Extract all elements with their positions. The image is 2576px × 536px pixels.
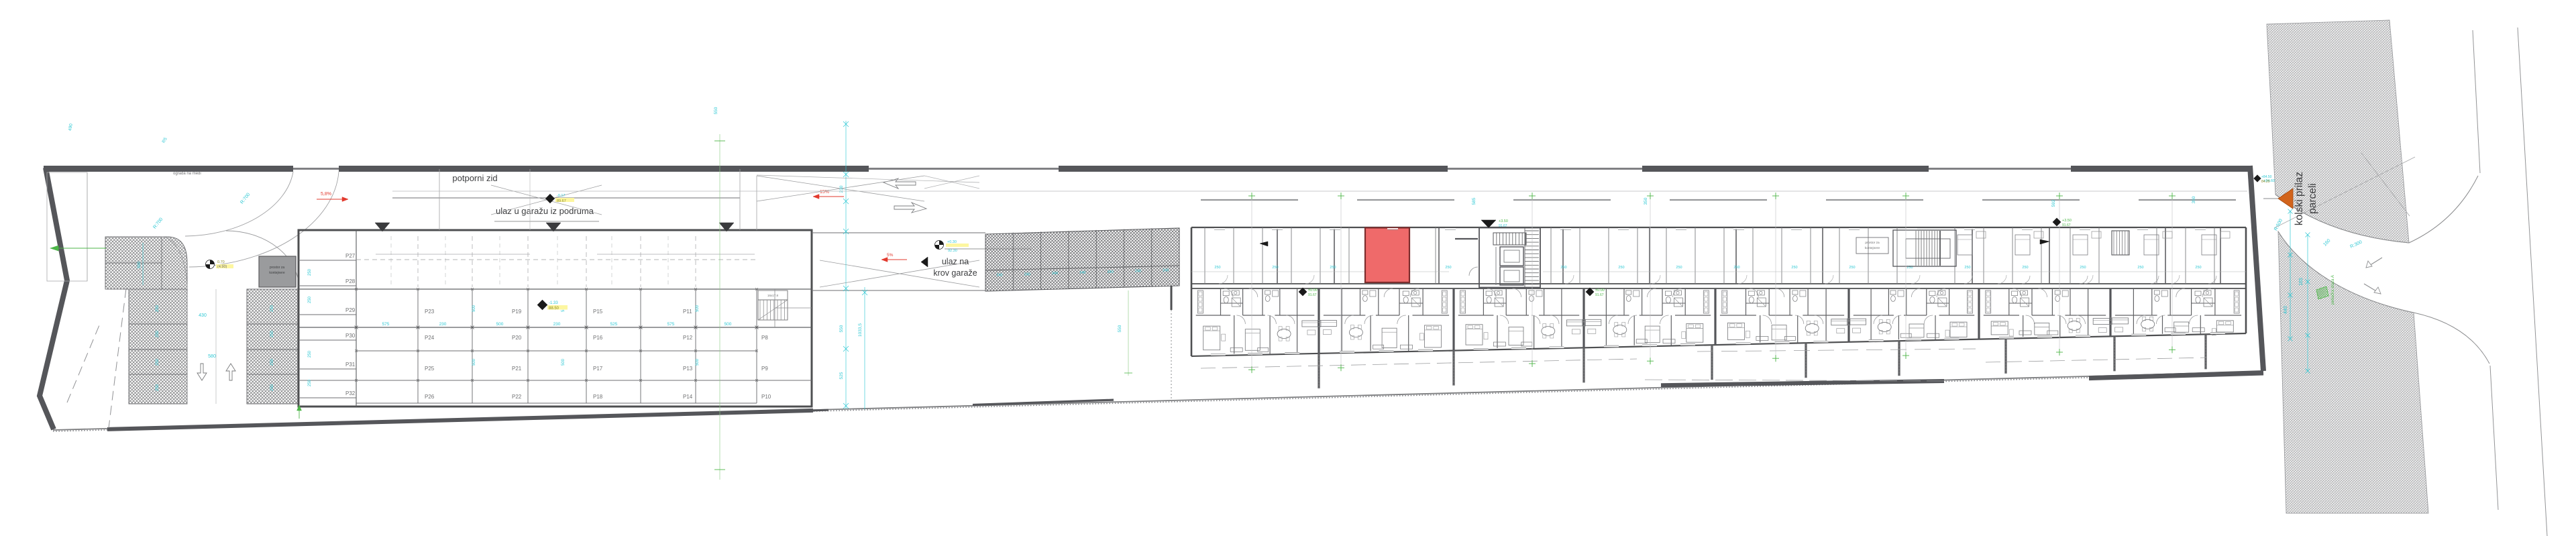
svg-text:P22: P22 [512,394,522,400]
svg-text:250: 250 [1618,266,1624,270]
svg-text:P29: P29 [345,307,356,313]
svg-text:+3.50: +3.50 [1499,219,1508,223]
svg-text:250: 250 [156,384,160,391]
svg-text:440: 440 [2284,306,2288,314]
svg-text:P31: P31 [345,362,356,368]
svg-text:P27: P27 [345,253,356,259]
svg-text:250: 250 [308,350,312,358]
svg-text:5,8%: 5,8% [321,192,331,197]
svg-text:500: 500 [724,322,732,327]
svg-text:250: 250 [1964,266,1970,270]
svg-text:potporni zid: potporni zid [452,173,497,183]
svg-text:P11: P11 [683,309,692,315]
svg-text:P19: P19 [512,309,522,315]
svg-text:500: 500 [472,358,476,366]
svg-text:1033,5: 1033,5 [858,323,863,337]
svg-text:550: 550 [138,261,142,268]
svg-text:89.67: 89.67 [557,199,566,203]
svg-text:430: 430 [199,313,207,318]
svg-text:P24: P24 [425,335,435,341]
svg-text:ulaz na: ulaz na [942,257,969,266]
svg-text:P21: P21 [512,366,522,372]
svg-text:250: 250 [270,384,274,391]
svg-text:+84.50: +84.50 [2261,175,2272,179]
svg-text:250: 250 [1560,266,1566,270]
svg-text:500: 500 [696,305,700,312]
svg-text:240: 240 [1052,272,1058,276]
svg-text:P25: P25 [425,366,435,372]
svg-text:575: 575 [667,322,675,327]
svg-text:P12: P12 [683,335,693,341]
svg-text:+3.50: +3.50 [2062,219,2072,223]
svg-text:250: 250 [308,268,312,276]
svg-text:0.70: 0.70 [217,260,225,264]
svg-text:P10: P10 [761,394,771,400]
svg-text:92.30: 92.30 [948,249,957,253]
svg-text:P9: P9 [761,366,768,372]
svg-text:(4.90): (4.90) [217,265,227,269]
svg-text:P26: P26 [425,394,435,400]
svg-text:±0.00: ±0.00 [1308,288,1318,292]
svg-text:P30: P30 [345,333,356,339]
svg-text:240: 240 [1135,270,1141,274]
svg-text:500: 500 [472,305,476,312]
svg-text:592: 592 [2051,199,2056,207]
svg-text:ulaz u garažu iz podruma: ulaz u garažu iz podruma [496,206,594,216]
svg-text:500: 500 [696,358,700,366]
svg-text:91.67: 91.67 [1595,293,1604,297]
svg-text:P16: P16 [593,335,603,341]
svg-text:350: 350 [1644,197,1648,205]
svg-text:240: 240 [1079,271,1085,275]
svg-text:91.67: 91.67 [2062,223,2071,227]
svg-text:550: 550 [714,107,718,114]
svg-text:250: 250 [156,330,160,337]
svg-text:240: 240 [1024,272,1030,276]
svg-text:250: 250 [2022,266,2028,270]
svg-text:parceli: parceli [2307,183,2318,214]
svg-text:±0.00: ±0.00 [1595,288,1605,292]
svg-text:250: 250 [1676,266,1682,270]
svg-text:230: 230 [439,322,447,327]
svg-text:91.67: 91.67 [1499,224,1507,228]
svg-text:P28: P28 [345,278,356,284]
svg-text:230: 230 [839,185,844,193]
svg-text:P32: P32 [345,390,356,396]
svg-text:525: 525 [610,322,618,327]
svg-text:250: 250 [1445,266,1451,270]
svg-text:-1.33: -1.33 [549,301,558,305]
svg-text:250: 250 [2080,266,2086,270]
svg-text:P23: P23 [425,309,435,315]
svg-text:250: 250 [2195,266,2201,270]
svg-text:165: 165 [2299,278,2304,286]
svg-text:230: 230 [553,322,561,327]
svg-text:84.20: 84.20 [2261,180,2270,184]
svg-text:P13: P13 [683,366,693,372]
svg-text:580: 580 [208,354,216,359]
svg-text:250: 250 [308,379,312,386]
svg-text:prostor za: prostor za [270,266,284,270]
svg-text:250: 250 [1849,266,1855,270]
svg-text:kontejnere: kontejnere [1865,246,1880,250]
svg-text:550: 550 [1118,325,1122,332]
svg-text:250: 250 [308,296,312,303]
svg-text:krov garaže: krov garaže [933,268,977,278]
svg-text:250: 250 [1214,266,1220,270]
svg-text:250: 250 [156,358,160,366]
svg-text:P14: P14 [683,394,693,400]
svg-text:P18: P18 [593,394,603,400]
svg-text:250: 250 [1272,266,1278,270]
svg-text:P15: P15 [593,309,603,315]
svg-text:88.50: 88.50 [549,307,559,311]
svg-text:250: 250 [270,330,274,337]
svg-text:250: 250 [1791,266,1797,270]
svg-text:ograda na međi: ograda na međi [173,172,201,176]
svg-text:P8: P8 [761,335,768,341]
svg-text:525: 525 [839,372,844,379]
svg-text:250: 250 [270,358,274,366]
svg-text:575: 575 [382,322,390,327]
svg-text:500: 500 [496,322,504,327]
svg-text:kontejnere: kontejnere [269,271,285,275]
svg-text:500: 500 [561,358,566,366]
svg-text:250: 250 [2137,266,2143,270]
svg-text:240: 240 [996,273,1002,277]
svg-text:-0.17: -0.17 [557,194,566,198]
svg-text:5%: 5% [887,253,894,258]
svg-text:350: 350 [2192,196,2196,203]
svg-text:250: 250 [1330,266,1336,270]
svg-text:91.67: 91.67 [1308,293,1317,297]
svg-text:pešačka staza A: pešačka staza A [2331,275,2335,305]
svg-text:250: 250 [1733,266,1739,270]
svg-text:kolski prilaz: kolski prilaz [2294,172,2305,225]
svg-text:250: 250 [156,305,160,312]
svg-text:240: 240 [1108,270,1114,274]
svg-text:240: 240 [1163,269,1169,273]
svg-text:16x17.8: 16x17.8 [767,294,779,297]
svg-text:550: 550 [839,325,844,332]
svg-text:585: 585 [1472,197,1477,205]
svg-text:prostor za: prostor za [1865,241,1880,245]
svg-text:P20: P20 [512,335,522,341]
svg-text:P17: P17 [593,366,603,372]
svg-text:250: 250 [270,305,274,312]
